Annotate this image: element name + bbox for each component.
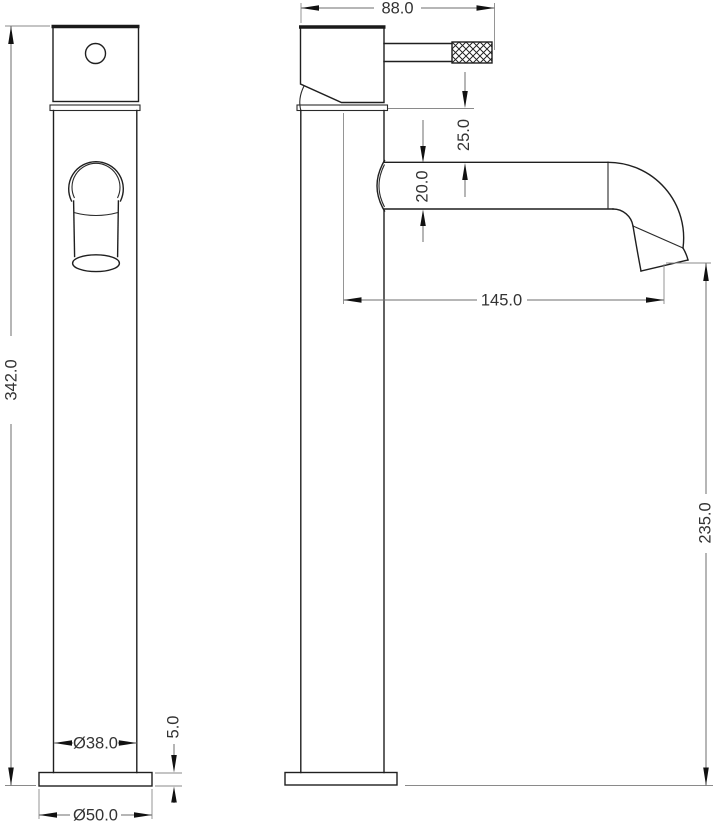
arrow-right [646, 297, 664, 303]
front-handle-screw-hole [86, 44, 106, 64]
dim-base-plate-height-label: 5.0 [165, 716, 183, 739]
arrow-left [301, 5, 319, 11]
arrow-down [171, 755, 177, 773]
spout-outlet-face [641, 260, 688, 271]
front-view [39, 26, 152, 786]
arrow-up [8, 26, 14, 44]
side-knurled-grip [452, 42, 492, 63]
front-bezel-band [50, 105, 140, 111]
front-base-plate [39, 773, 152, 787]
arrow-right [119, 740, 137, 746]
dim-spout-diameter: 20.0 [414, 120, 432, 242]
side-handle-lever [384, 42, 492, 63]
dim-base-plate-height: 5.0 [155, 716, 183, 803]
spout-aerator-joint-line [633, 226, 683, 248]
side-head-body [301, 28, 385, 103]
arrow-up [703, 263, 709, 281]
arrow-up [420, 210, 426, 227]
arrow-left [39, 812, 57, 818]
arrow-down [420, 146, 426, 163]
dim-outlet-height-label: 235.0 [697, 502, 715, 543]
arrow-left [344, 297, 362, 303]
dim-overall-height-label: 342.0 [3, 359, 21, 400]
arrow-down [703, 768, 709, 786]
arrow-right [477, 5, 495, 11]
knurl-crosshatch [452, 42, 492, 63]
dim-head-to-spout-gap-label: 25.0 [455, 119, 473, 151]
arrow-up [171, 787, 177, 803]
dim-overall-height: 342.0 [3, 26, 51, 786]
side-base-plate [285, 773, 397, 786]
arrow-up [462, 163, 468, 180]
arrow-right [134, 812, 152, 818]
side-bezel-band [297, 105, 388, 111]
front-spout-outlet-ellipse [73, 255, 120, 272]
dim-spout-reach: 145.0 [344, 113, 665, 310]
technical-drawing: 342.0 Ø38.0 Ø50.0 5.0 88.0 [0, 0, 716, 827]
dim-spout-reach-label: 145.0 [481, 292, 522, 310]
dim-body-diameter-label: Ø38.0 [73, 735, 118, 753]
arrow-left [54, 740, 72, 746]
arrow-down [462, 91, 468, 108]
dim-spout-diameter-label: 20.0 [414, 170, 432, 202]
side-handle-pivot-arc [300, 86, 304, 111]
dim-head-width-label: 88.0 [381, 0, 413, 18]
arrow-down [8, 768, 14, 786]
dim-body-diameter: Ø38.0 [54, 735, 137, 753]
front-spout [69, 162, 124, 272]
drawing-sheet: 342.0 Ø38.0 Ø50.0 5.0 88.0 [0, 0, 716, 827]
side-view [285, 27, 688, 785]
dim-base-diameter: Ø50.0 [39, 789, 152, 825]
dim-outlet-height: 235.0 [405, 263, 715, 786]
dim-base-diameter-label: Ø50.0 [73, 807, 118, 825]
